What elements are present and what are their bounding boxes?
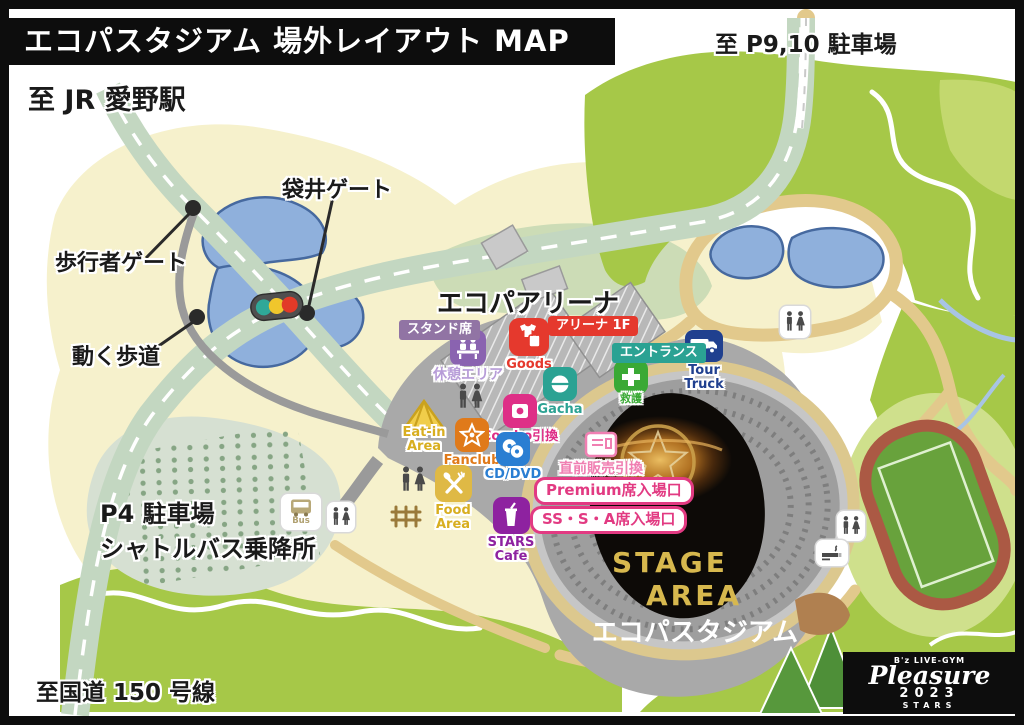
last-minute-poi: 直前販売引換 <box>563 430 639 477</box>
direction-route150: 至国道 150 号線 <box>36 673 215 707</box>
gate-dot <box>189 309 205 325</box>
cup-icon <box>493 497 530 534</box>
pedestrian-gate-label: 歩行者ゲート <box>55 245 187 277</box>
stadium-title: エコパスタジアム <box>555 612 835 649</box>
stage-area-line1: STAGE <box>612 546 722 579</box>
arena-1f-badge: アリーナ 1F <box>548 316 638 336</box>
entrance-badge: エントランス <box>612 343 706 363</box>
first-aid-label: 救護 <box>620 393 642 405</box>
premium-entry-badge: Premium席入場口 <box>534 477 694 505</box>
food-area-label: Food Area <box>430 504 476 531</box>
bus-icon: Bus <box>281 494 321 530</box>
stars-cafe-label: STARS Cafe <box>485 536 537 563</box>
tour-logo: B'z LIVE-GYM Pleasure 2023 STARS <box>843 652 1016 714</box>
restroom-icon <box>398 466 428 498</box>
ecopa-outdoor-map: エコパスタジアム 場外レイアウト MAP 至 P9,10 駐車場 至 JR 愛野… <box>0 0 1024 725</box>
fukuroi-gate-label: 袋井ゲート <box>282 172 392 204</box>
restroom-icon <box>780 306 810 338</box>
fence-icon <box>388 503 424 533</box>
direction-jr-aino: 至 JR 愛野駅 <box>28 78 186 117</box>
restroom-icon <box>455 383 485 415</box>
first-aid-poi: 救護 <box>593 360 669 405</box>
stand-seats-badge: スタンド席 <box>399 320 480 340</box>
tour-truck-label: Tour Truck <box>679 364 729 391</box>
moving-walkway-label: 動く歩道 <box>72 339 160 371</box>
restroom-icon <box>837 511 865 541</box>
tour-logo-year: 2023 <box>899 687 959 701</box>
page-title: エコパスタジアム 場外レイアウト MAP <box>9 18 615 65</box>
bus-label: Bus <box>292 517 310 526</box>
p4-line2: シャトルバス乗降所 <box>100 529 316 564</box>
tour-logo-sub: STARS <box>903 701 957 710</box>
tshirt-bag-icon <box>509 318 549 356</box>
disc-icon <box>496 432 530 466</box>
ticket-machine-icon <box>583 430 619 460</box>
last-minute-label: 直前販売引換 <box>559 462 643 477</box>
smoking-area-icon <box>816 540 848 566</box>
ssa-entry-badge: SS・S・A席入場口 <box>530 506 687 534</box>
fork-spoon-icon <box>435 465 472 502</box>
cross-icon <box>614 360 648 394</box>
direction-p910: 至 P9,10 駐車場 <box>715 25 897 59</box>
tour-logo-name: Pleasure <box>869 665 991 687</box>
gate-dot <box>185 200 201 216</box>
restroom-icon <box>327 502 355 532</box>
arena-title: エコパアリーナ <box>437 283 619 320</box>
stage-area-line2: AREA <box>646 579 731 612</box>
cd-dvd-label: CD/DVD <box>485 468 542 482</box>
traffic-light-icon <box>248 289 305 326</box>
